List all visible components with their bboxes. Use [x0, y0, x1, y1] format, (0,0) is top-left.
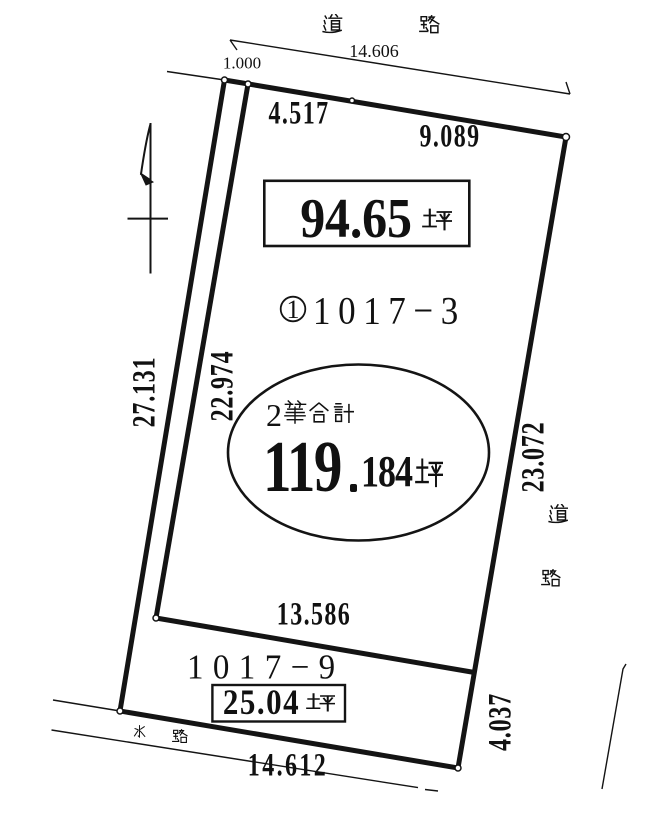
- svg-text:1: 1: [287, 295, 300, 324]
